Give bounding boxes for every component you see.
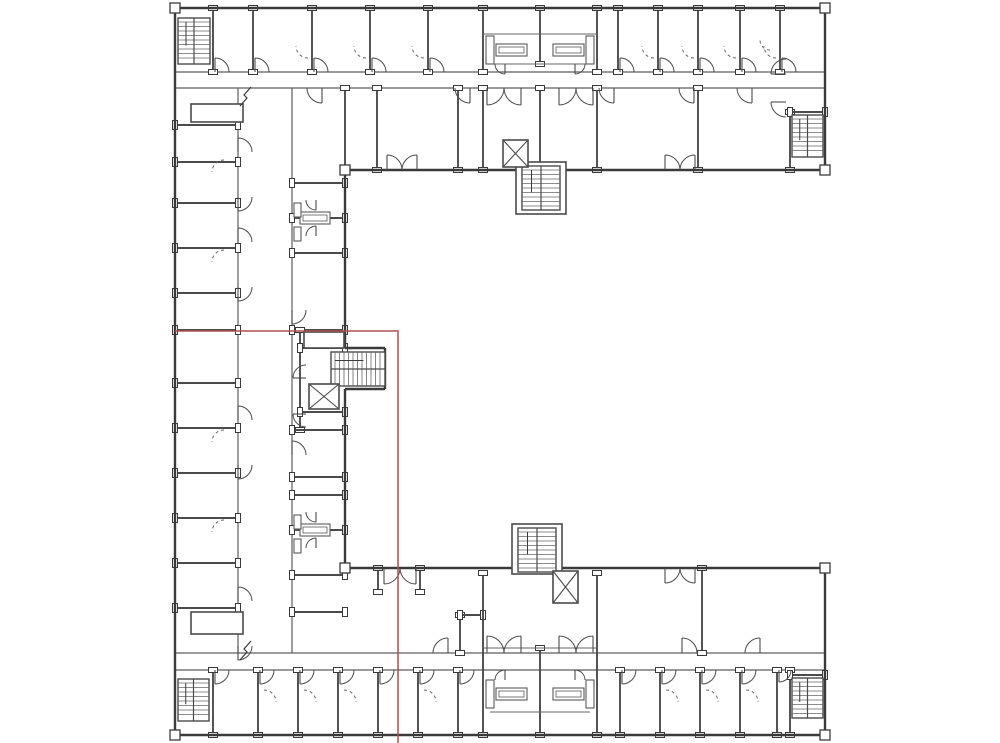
plan-background xyxy=(0,0,1000,743)
floorplan-viewport xyxy=(0,0,1000,743)
floorplan-canvas[interactable] xyxy=(0,0,1000,743)
